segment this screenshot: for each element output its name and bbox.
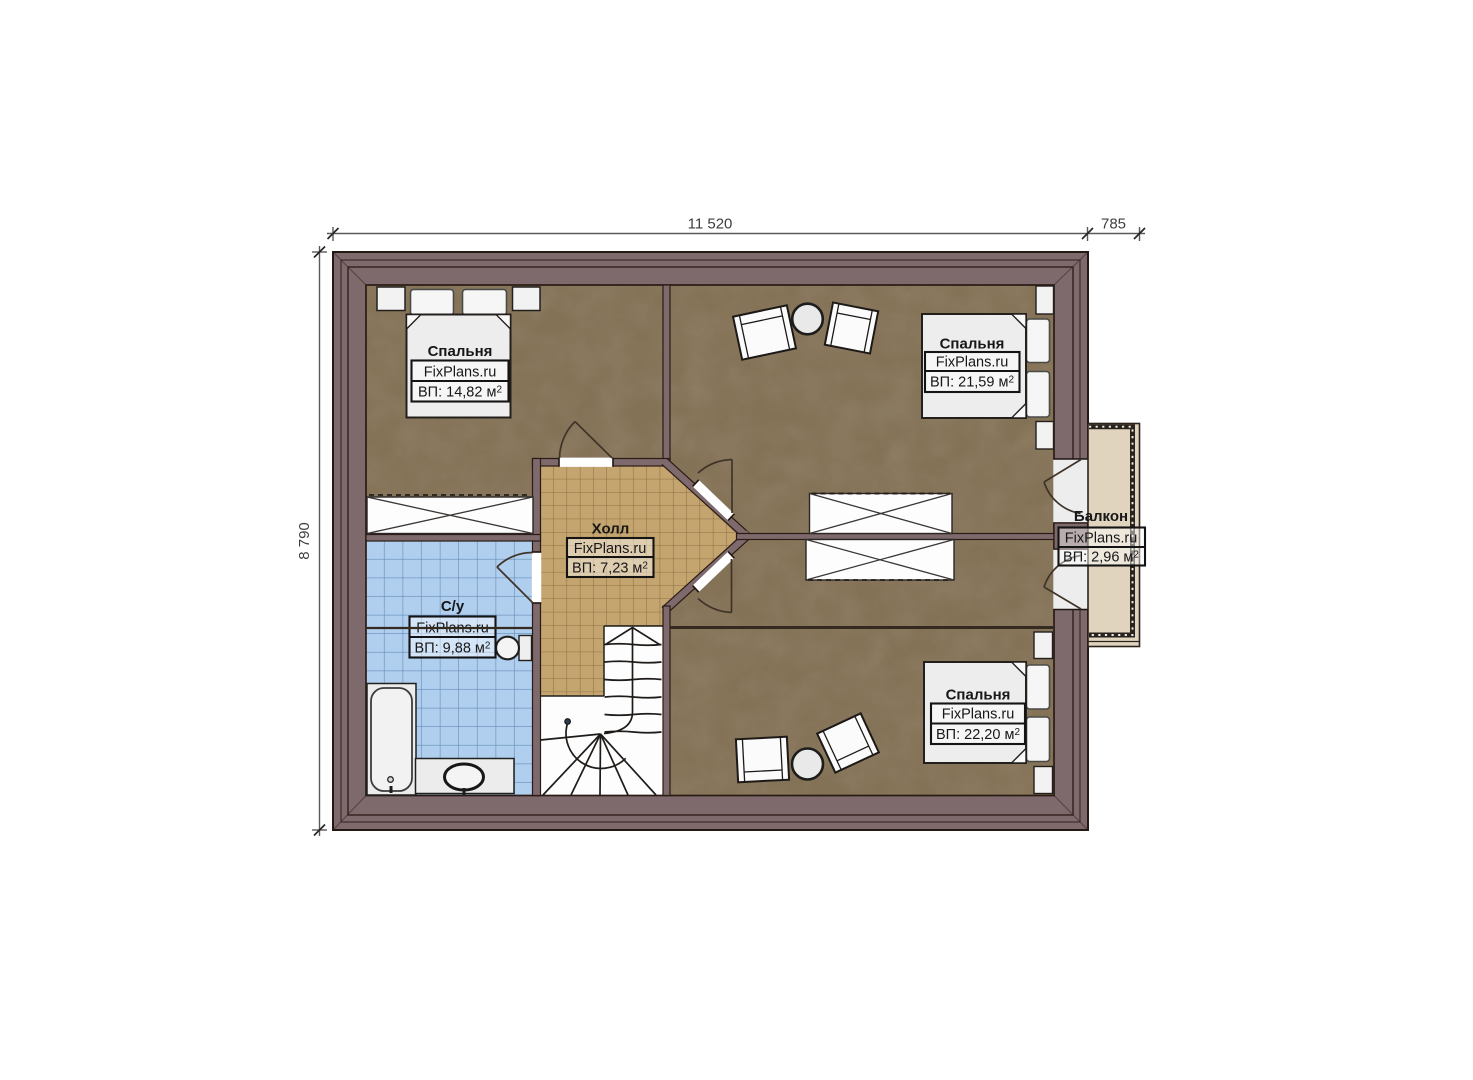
svg-text:11 520: 11 520 (688, 216, 733, 233)
svg-text:ВП: 21,59 м2: ВП: 21,59 м2 (930, 375, 1014, 391)
svg-text:Спальня: Спальня (946, 687, 1011, 704)
svg-text:ВП: 2,96 м2: ВП: 2,96 м2 (1063, 550, 1139, 566)
svg-text:ВП: 9,88 м2: ВП: 9,88 м2 (415, 641, 491, 657)
svg-text:785: 785 (1101, 216, 1126, 233)
svg-text:FixPlans.ru: FixPlans.ru (424, 365, 497, 381)
svg-text:Спальня: Спальня (940, 336, 1005, 353)
svg-text:FixPlans.ru: FixPlans.ru (936, 355, 1009, 371)
svg-text:С/у: С/у (441, 598, 465, 615)
svg-text:Холл: Холл (592, 521, 630, 538)
svg-text:FixPlans.ru: FixPlans.ru (1065, 531, 1138, 547)
svg-text:Спальня: Спальня (428, 343, 493, 360)
svg-text:Балкон: Балкон (1074, 508, 1128, 525)
svg-text:ВП: 7,23 м2: ВП: 7,23 м2 (572, 561, 648, 577)
svg-text:ВП: 22,20 м2: ВП: 22,20 м2 (936, 727, 1020, 743)
svg-text:FixPlans.ru: FixPlans.ru (942, 707, 1015, 723)
svg-text:FixPlans.ru: FixPlans.ru (574, 541, 647, 557)
svg-text:ВП: 14,82 м2: ВП: 14,82 м2 (418, 385, 502, 401)
svg-text:8 790: 8 790 (296, 522, 313, 560)
